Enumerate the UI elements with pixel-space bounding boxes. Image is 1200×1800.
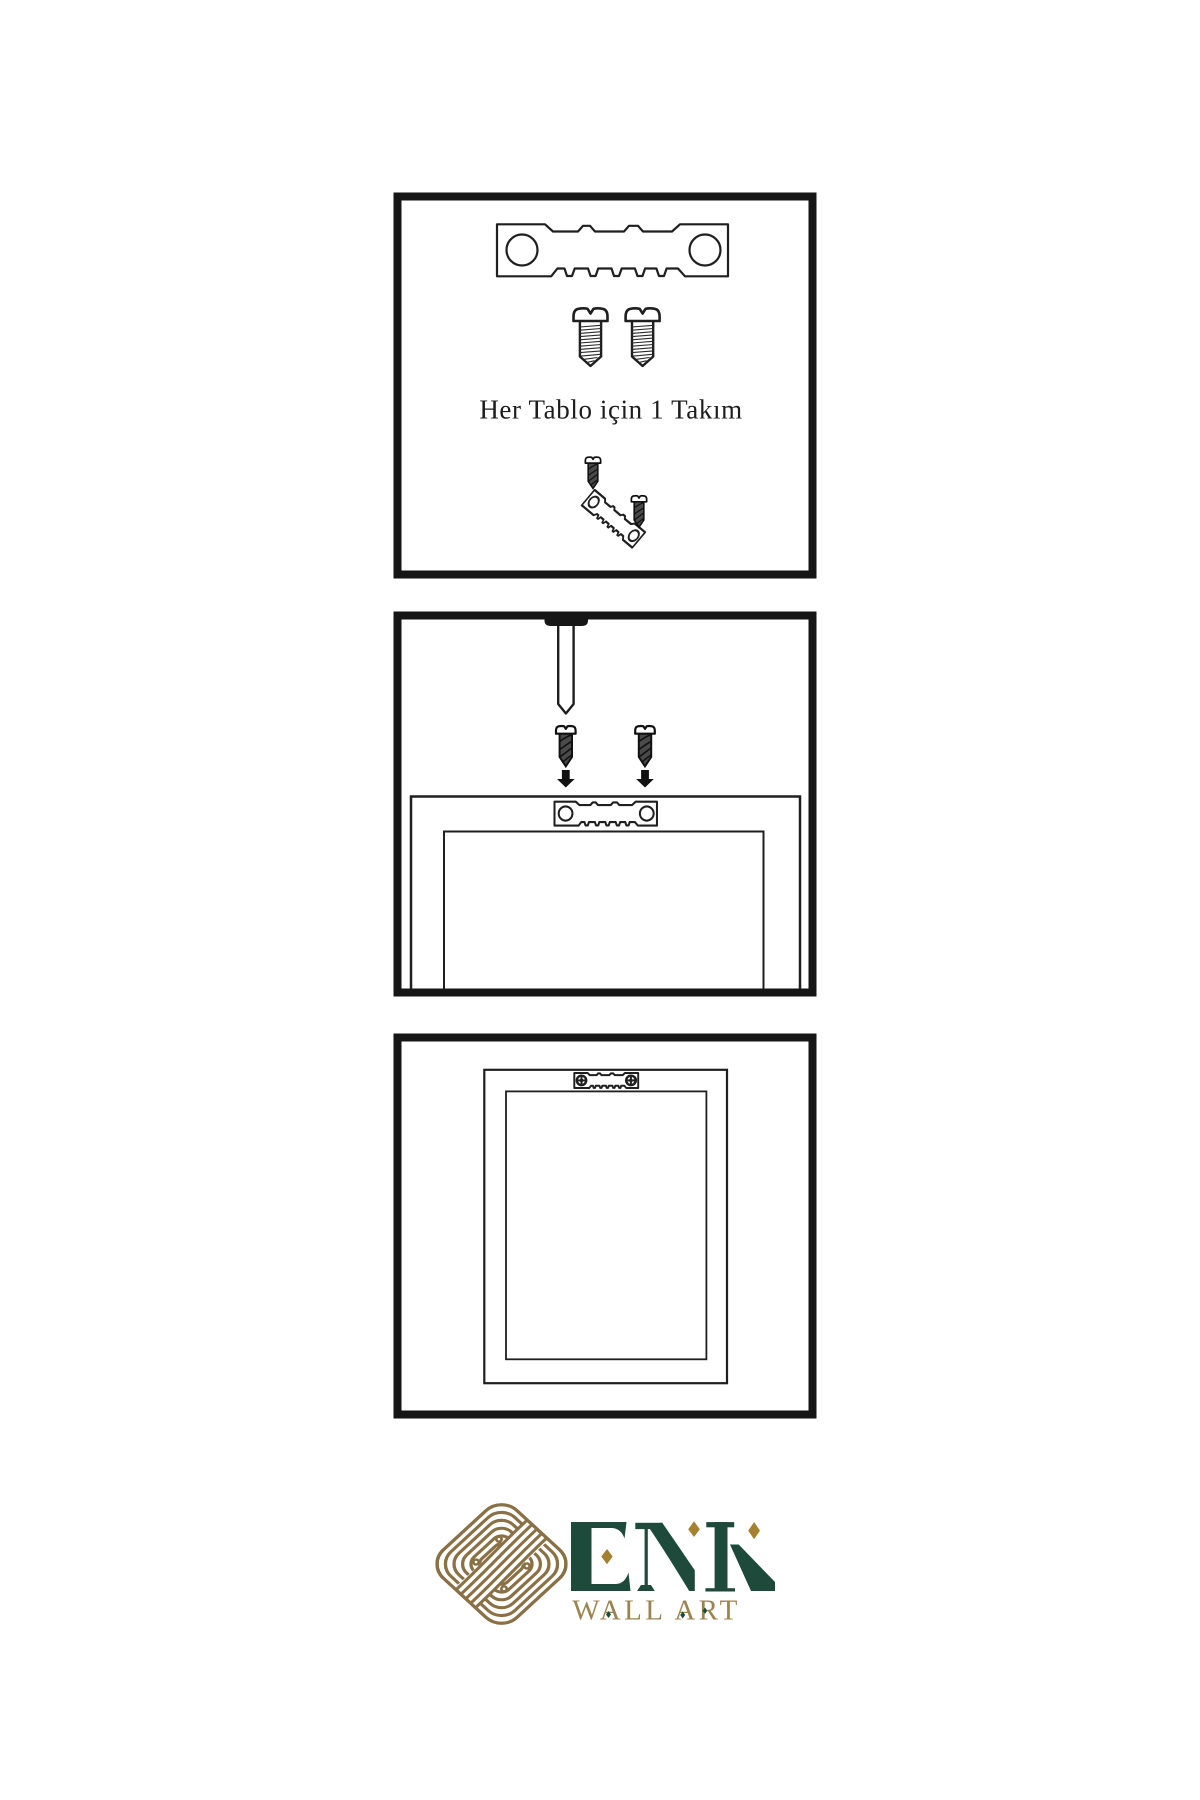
svg-text:Her Tablo için 1 Takım: Her Tablo için 1 Takım <box>479 395 742 425</box>
svg-text:WALL ART: WALL ART <box>572 1595 741 1627</box>
